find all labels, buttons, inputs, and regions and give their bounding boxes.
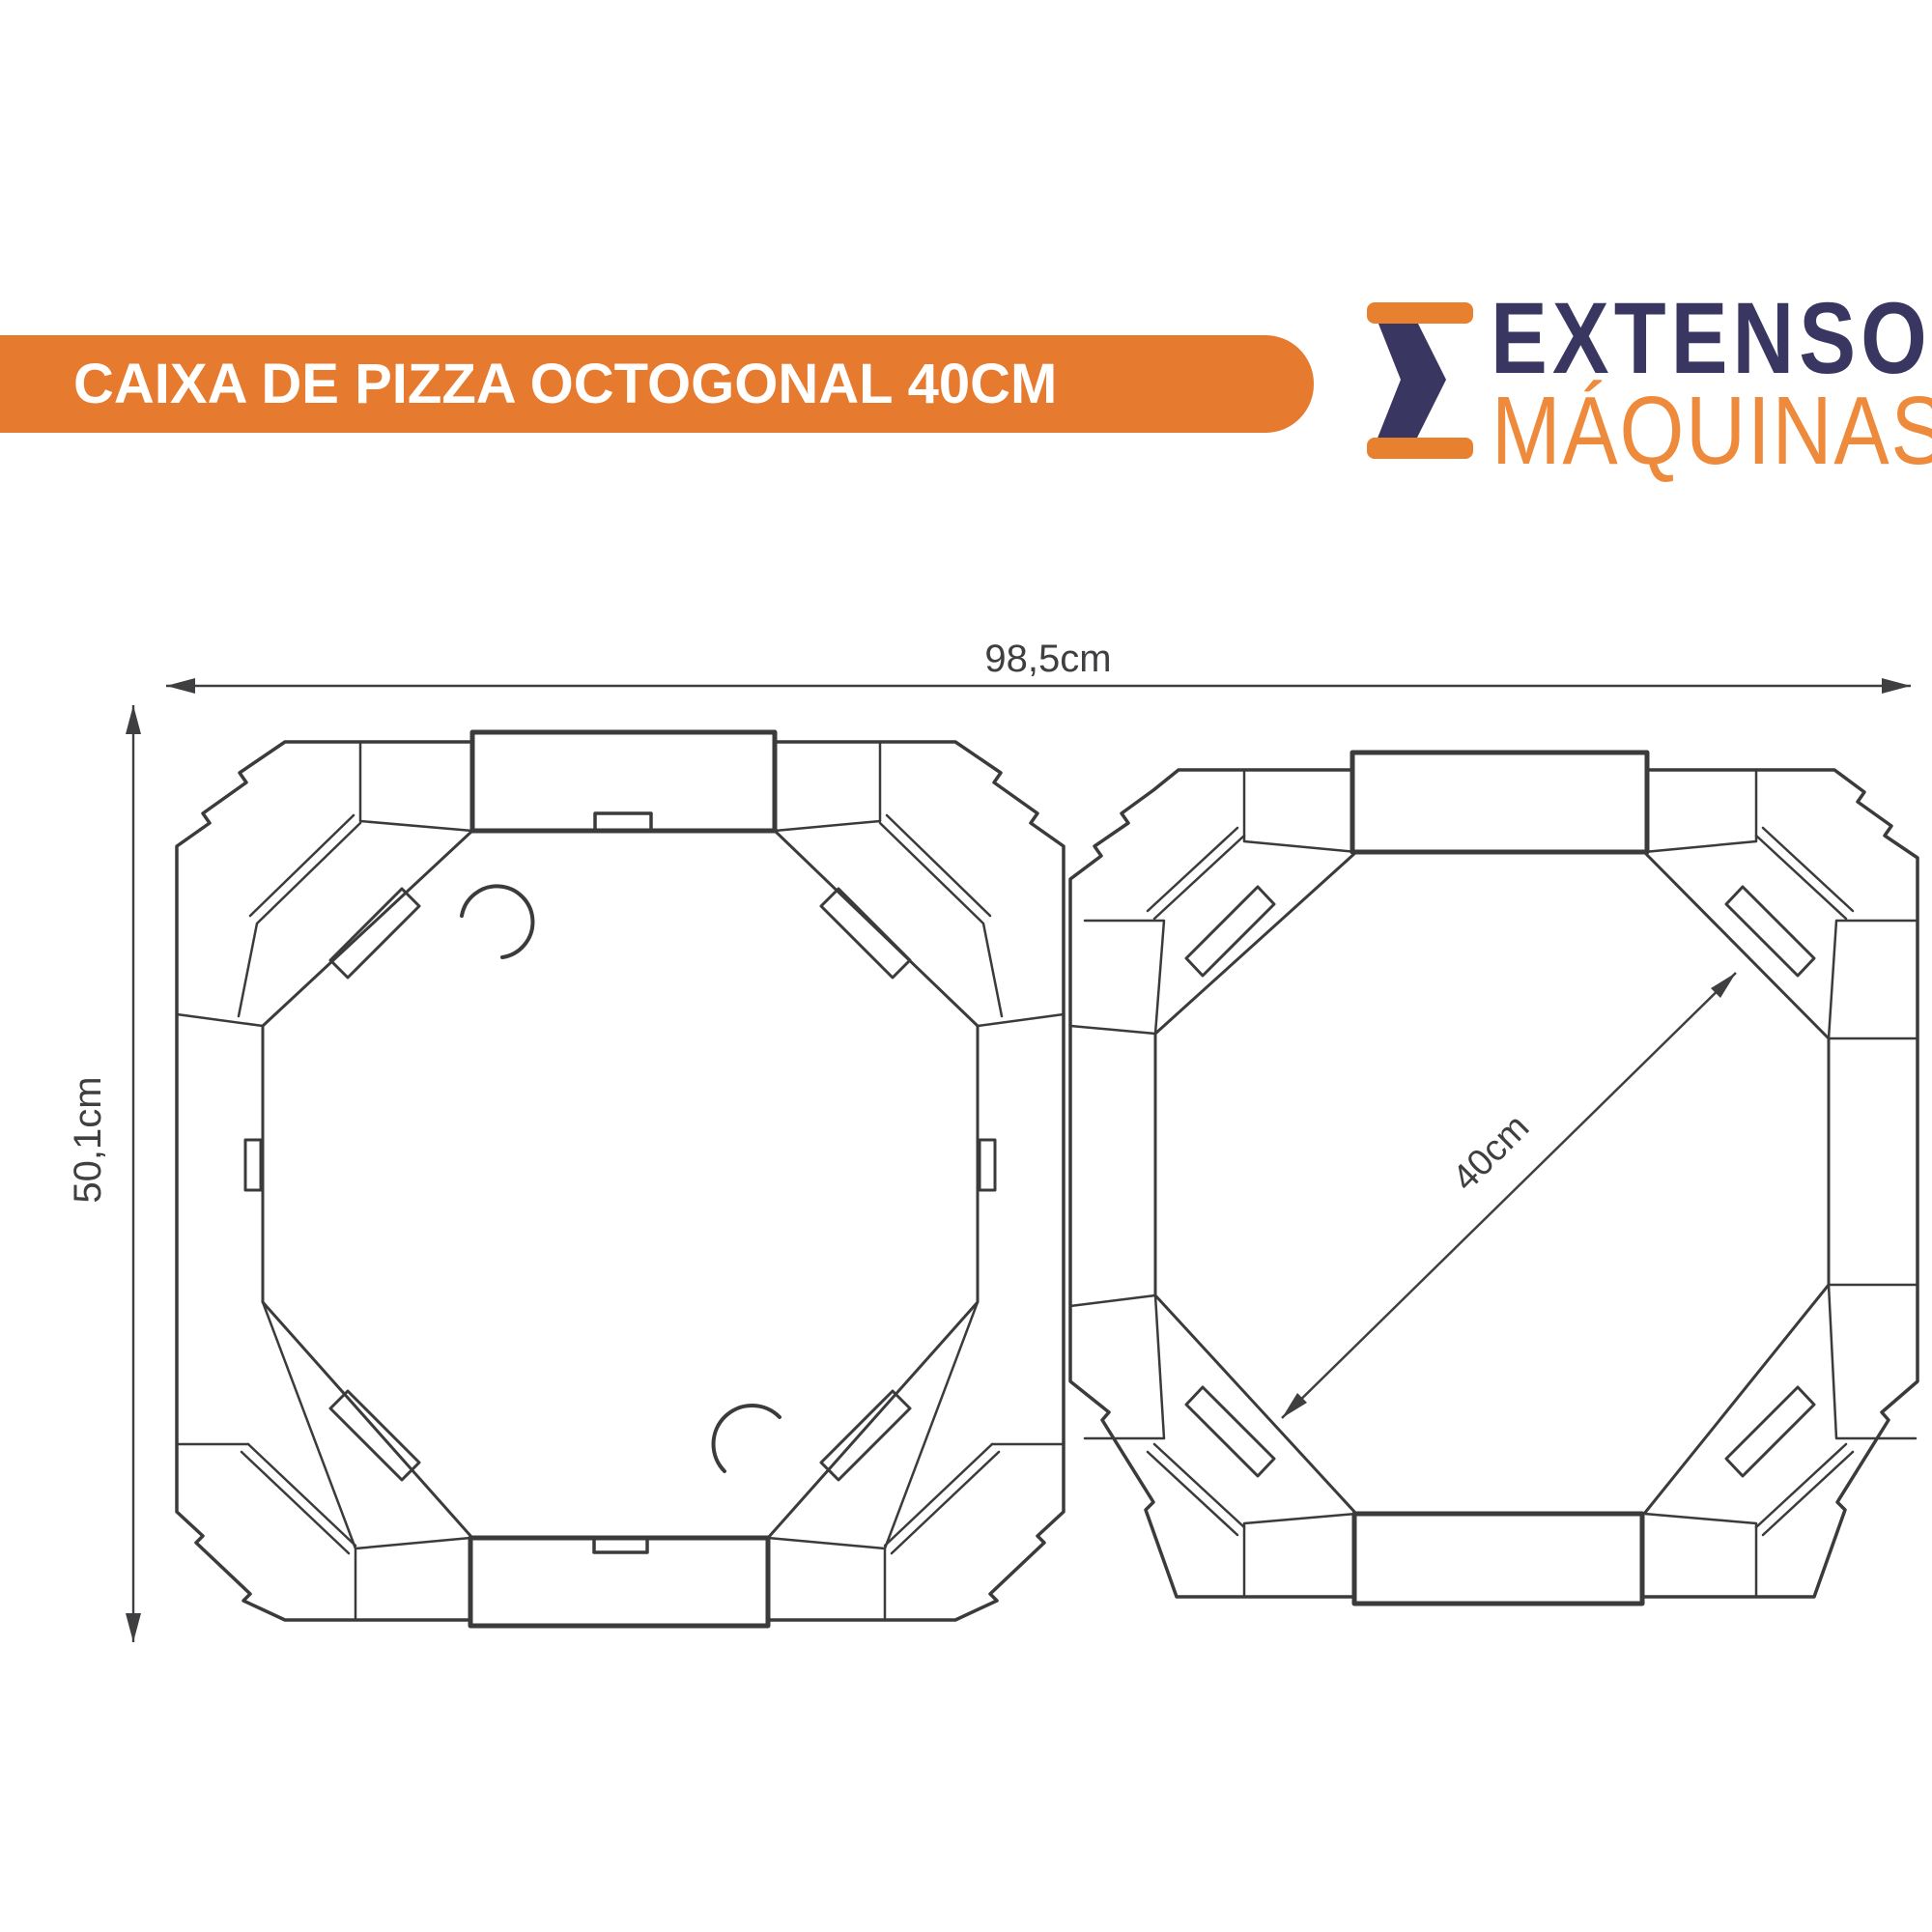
- page: CAIXA DE PIZZA OCTOGONAL 40CM EXTENSO MÁ…: [0, 0, 1932, 1932]
- height-dimension: 50,1cm: [67, 705, 141, 1642]
- base-bottom-wall: [1354, 1514, 1642, 1604]
- diameter-dimension: 40cm: [1282, 973, 1736, 1418]
- diameter-dimension-label: 40cm: [1445, 1107, 1537, 1199]
- width-dimension-label: 98,5cm: [984, 638, 1111, 680]
- base-corner-gussets: [1148, 828, 1853, 1535]
- lid-vent-crescent-bottom: [714, 1406, 780, 1471]
- lid-right-slot: [980, 1140, 995, 1190]
- diameter-dimension-line: [1282, 973, 1736, 1418]
- lid-vent-crescent-top: [462, 886, 532, 957]
- arrow-left-icon: [166, 678, 195, 694]
- arrow-right-icon: [1882, 678, 1911, 694]
- lid-outline: [177, 732, 1064, 1626]
- lid-corner-gussets: [239, 815, 1002, 1553]
- lid-left-slot: [245, 1140, 261, 1190]
- base-fold-lines: [1070, 770, 1918, 1597]
- lid-top-wall: [472, 732, 775, 831]
- lid-top-tab-notch: [595, 813, 651, 831]
- arrow-down-icon: [126, 1613, 141, 1642]
- arrow-up-icon: [126, 705, 141, 734]
- width-dimension: 98,5cm: [166, 638, 1911, 694]
- base-octagon-panel: [1155, 852, 1829, 1514]
- lid-octagon-panel: [263, 831, 978, 1538]
- dieline-drawing: 98,5cm 50,1cm: [0, 0, 1932, 1932]
- height-dimension-label: 50,1cm: [67, 1076, 109, 1203]
- base-top-wall: [1352, 753, 1647, 852]
- lid-diagonal-tabs: [330, 889, 910, 1480]
- base-diagonal-tabs: [1186, 887, 1814, 1476]
- pizza-box-lid-dieline: [177, 732, 1064, 1626]
